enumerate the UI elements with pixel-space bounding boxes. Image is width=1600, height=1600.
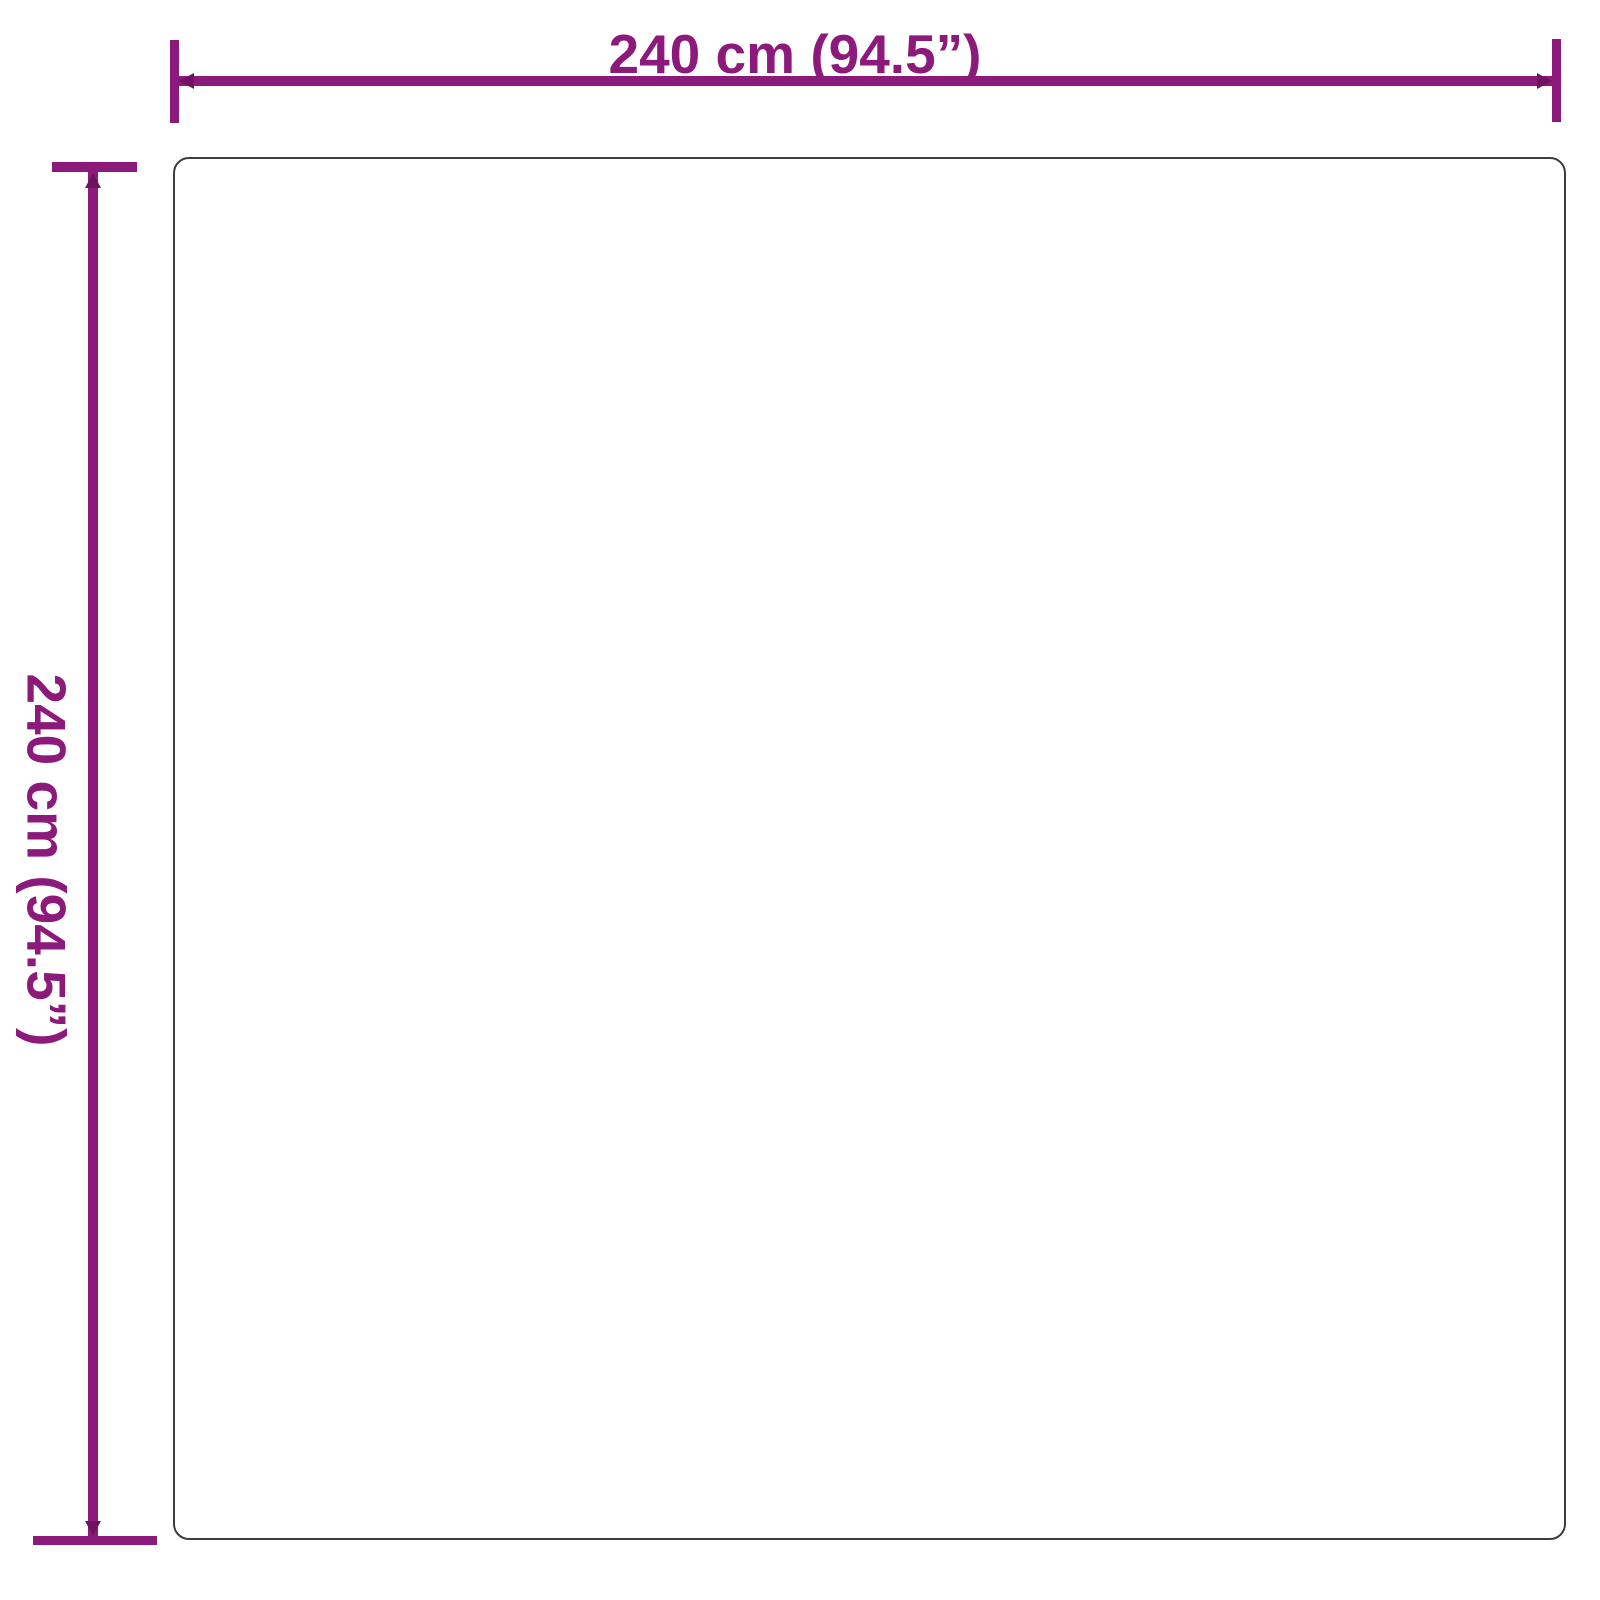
height-arrow-tip-bottom xyxy=(85,1521,101,1536)
height-dimension-bottom-cap xyxy=(33,1536,157,1545)
height-arrow-tip-top xyxy=(85,173,101,188)
width-dimension-right-cap xyxy=(1552,39,1561,122)
width-dimension-label: 240 cm (94.5”) xyxy=(609,27,982,82)
height-dimension-label: 240 cm (94.5”) xyxy=(19,674,74,1047)
height-dimension-top-cap xyxy=(52,162,137,172)
height-dimension-line xyxy=(88,167,98,1541)
width-dimension-left-cap xyxy=(170,40,179,123)
width-arrow-tip-left xyxy=(179,73,194,89)
dimension-diagram: 240 cm (94.5”) 240 cm (94.5”) xyxy=(0,0,1600,1600)
width-arrow-tip-right xyxy=(1537,73,1552,89)
product-outline-box xyxy=(173,157,1566,1540)
